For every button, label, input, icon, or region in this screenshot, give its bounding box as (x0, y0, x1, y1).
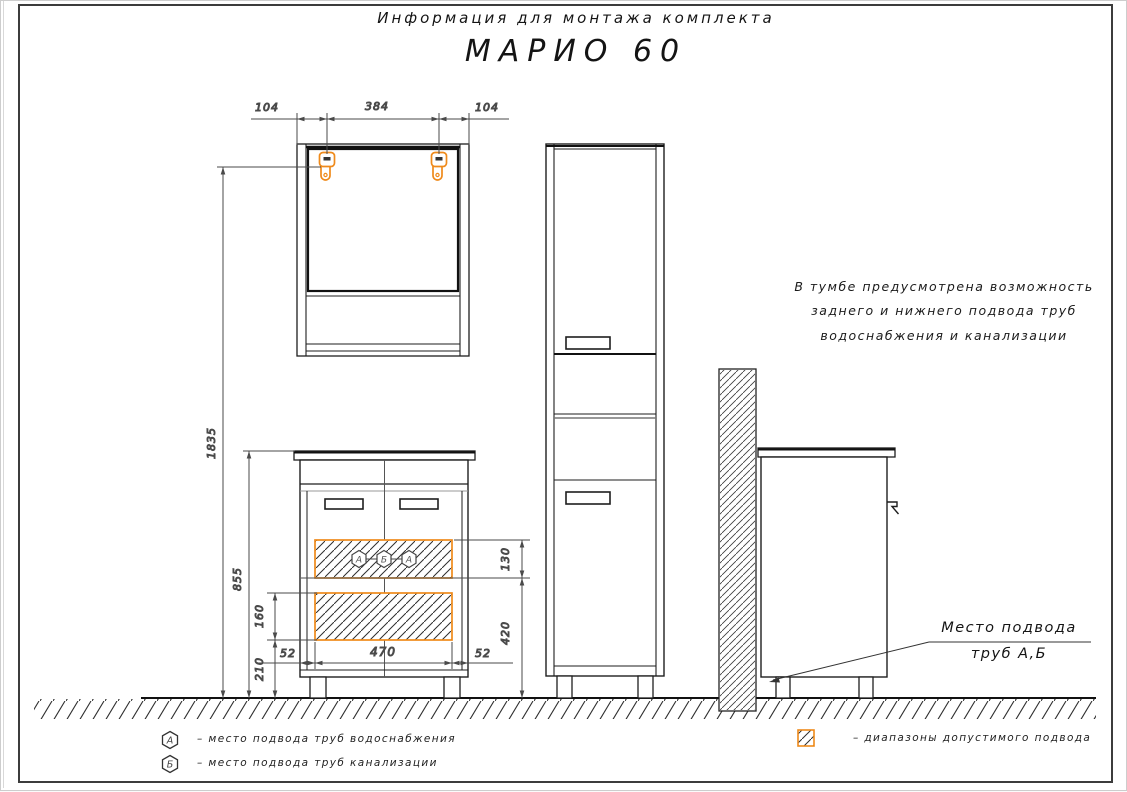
vanity-leg-right (444, 677, 460, 698)
legend-hex-water-letter: А (166, 736, 174, 747)
dim-label-52-left: 52 (280, 647, 296, 660)
dim-label-210: 210 (253, 657, 266, 681)
ground (34, 698, 1096, 719)
legend-hex-sewer-letter: Б (167, 760, 174, 771)
dim-label-104-left: 104 (255, 101, 279, 114)
dim-label-420: 420 (499, 621, 512, 645)
drawing-canvas: А Б А (1, 1, 1127, 792)
ground-hatch (34, 699, 1096, 719)
tall-cabinet (546, 144, 664, 698)
dim-label-855: 855 (231, 567, 244, 591)
note-line-3: водоснабжения и канализации (783, 328, 1105, 343)
leader-arrowhead (769, 678, 780, 683)
legend-range-swatch (798, 730, 814, 746)
dim-label-470: 470 (370, 645, 396, 659)
callout-line-1: Место подвода (923, 620, 1095, 636)
legend-range-text: – диапазоны допустимого подвода (853, 732, 1091, 744)
dim-label-130: 130 (499, 547, 512, 571)
bracket-slot (436, 157, 443, 161)
tall-cabinet-leg-right (638, 676, 653, 698)
drawing-title-model: МАРИО 60 (371, 34, 781, 69)
side-view-leg-right (859, 677, 873, 698)
callout-line-2: труб А,Б (923, 646, 1095, 662)
legend-water-text: – место подвода труб водоснабжения (197, 733, 456, 745)
dim-label-160: 160 (253, 604, 266, 628)
dim-label-384: 384 (365, 100, 389, 113)
wall (719, 369, 756, 711)
side-view-hook (887, 502, 899, 514)
marker-letter-a2: А (405, 556, 412, 566)
marker-letter-b: Б (381, 556, 387, 566)
note-line-1: В тумбе предусмотрена возможность (783, 279, 1105, 294)
dim-label-52-right: 52 (475, 647, 491, 660)
marker-letter-a1: А (355, 556, 362, 566)
drawing-subtitle: Информация для монтажа комплекта (331, 9, 821, 27)
legend-sewer-text: – место подвода труб канализации (197, 757, 438, 769)
zone-markers: А Б А (352, 551, 416, 568)
note-line-2: заднего и нижнего подвода труб (783, 303, 1105, 318)
vanity-side-view (758, 448, 899, 698)
drawing-page: А Б А (0, 0, 1127, 791)
dim-label-1835: 1835 (205, 427, 218, 459)
vanity-leg-left (310, 677, 326, 698)
tall-cabinet-leg-left (557, 676, 572, 698)
hatch-region-lower (315, 593, 452, 640)
dim-label-104-right: 104 (475, 101, 499, 114)
bracket-slot (324, 157, 331, 161)
